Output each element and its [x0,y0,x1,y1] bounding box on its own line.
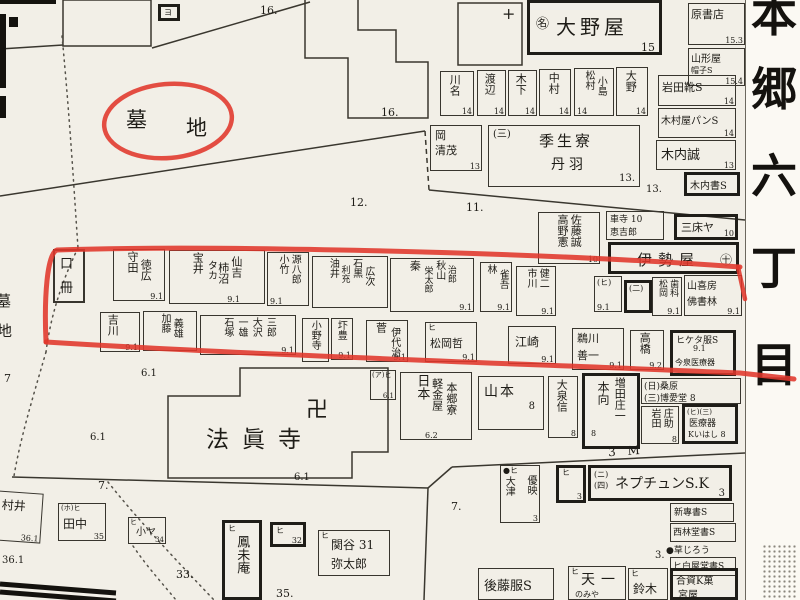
type-mark: ヒ [228,525,236,533]
resident-name: 石黒 [350,258,360,278]
cemetery-label: 墓 [126,104,147,134]
resident-name: 宝井 [192,252,203,274]
company-name: 軽金屋 [431,378,442,411]
bldg-iryoki-ihashi: (ヒ)(三) 医療器 Kいはし 8 [682,404,738,444]
resident-name: 一雄 [236,317,246,337]
parcel-number: 8 [571,430,576,438]
type-mark: ヒ [321,532,329,540]
bldg-goto-fuku: 後藤服S [478,568,554,600]
railway-bar [0,584,116,593]
parcel-number: 14 [724,130,734,138]
bldg-kiuchi-shoten: 木内書S [684,172,740,196]
story-mark: (四) [594,482,608,490]
type-mark: ヒ [562,469,570,477]
resident-name: 岡 [435,127,446,143]
shop-name: 歯科 [668,279,677,297]
parcel-number: 32 [292,537,302,545]
bldg-oonoya: ㊔ 大野屋 15 [527,0,662,55]
type-mark: ヒ [571,568,579,576]
parcel-number: 8 [591,430,596,438]
type-mark: ヒ [631,570,639,578]
shop-name: 鳳未庵 [235,535,248,574]
boundary-dotted [133,546,176,600]
type-mark: (ホ)ヒ [61,505,80,512]
district-char: 六 [751,153,797,199]
parcel-number: 12. [350,196,368,209]
bldg-oono: 大野 14 [616,67,648,116]
parcel-number: 8 [529,401,535,412]
shop-name: 山形屋 [691,50,721,65]
bldg-hi32: ヒ 32 [270,522,306,547]
parcel-number: 9.1 [227,296,240,304]
parcel-number: 35 [94,533,104,541]
bldg-goshi-kashi: 合資K菓 宮屋 [670,568,738,600]
bldg-sekiya-yatarō: ヒ 関谷 31 弥太郎 [318,530,390,576]
shop-name: 大津 [503,476,513,496]
parcel-number: 36.1 [2,555,24,566]
resident-name: 江崎 [515,333,539,350]
bldg-takarai-kakinuma: 宝井 タカ 柿沼 仙吉 9.1 [169,250,265,304]
cemetery-edge-label: 地 [0,320,12,341]
parcel-number: 9.1 [125,344,138,352]
parcel-number: 9.1 [541,308,554,316]
company-name: 合資K菓 [676,572,713,587]
parcel-number: 14 [577,108,587,116]
building-name: 本郷寮 [446,382,457,415]
bldg-akutsu: 圷豊 9.1 [331,318,353,360]
resident-name: 弥太郎 [331,555,367,572]
resident-name: 本向 [597,381,609,405]
parcel-number: 14 [462,108,472,116]
shop-name: 小ヤ [136,523,156,538]
resident-name: 三郎 [264,317,274,337]
bldg-takano-sato: 高野憲 佐藤誠 10 [538,212,600,264]
resident-name: 木下 [515,73,526,95]
circled-mark: ㊉ [720,251,732,268]
bldg-koya: ヒ 小ヤ 34 [128,517,166,544]
shop-name: 天一 [581,569,621,589]
parcel-number: 9.1 [150,293,163,301]
parcel-number: 6.1 [294,472,310,483]
resident-name: 大野 [625,70,636,92]
type-mark: ヒ [276,527,284,535]
resident-name: 小野寺 [309,320,319,350]
bldg-oka-kiyoshige: 岡 清茂 13 [430,125,482,171]
street-line [424,488,428,600]
district-char: 目 [751,342,797,388]
resident-name: 岩田 [649,408,659,428]
resident-name: 山本 [484,381,516,401]
bldg-otsu-yuei: ●ヒ 大津 優映 3 [500,465,540,523]
bldg-kato-yoshio: 加藤 義雄 [143,311,197,351]
bldg-kuwabara-hakuaido: (日)桑原 (三)博愛堂 8 [641,378,741,404]
railway-bar [0,592,116,600]
district-char: 郷 [751,66,797,112]
bldg-seirindo-shoten: 西林堂書S [670,523,736,542]
bldg-matsumura-kojima: 松村 小島 14 [574,68,614,116]
district-char: 丁 [751,245,797,291]
marker-label: ヨ [164,9,172,17]
resident-name: 仙吉 [231,256,242,278]
shop-name: 松岡 [657,279,666,297]
bldg-ezaki: 江崎 9.1 [508,326,556,364]
street-line [0,45,63,49]
temple-name: 法眞寺 [206,420,314,454]
parcel-number: 36.1 [20,534,38,543]
parcel-number: 10 [588,256,598,264]
road-width-label: 3 M [608,443,645,459]
resident-name: 中村 [548,72,559,94]
shop-name: 山喜房 [687,277,717,292]
resident-name: タカ [205,260,215,280]
bldg-matsuoka-tetsu: ヒ 松岡哲 9.1 [425,322,477,362]
parcel-number: 9.1 [541,356,554,364]
bldg-hara-shoten: 原書店 15.3 [688,3,745,45]
resident-name: 川名 [449,74,460,96]
resident-name: 栄太郎 [422,266,431,293]
district-char: 本 [751,0,797,38]
resident-name: 鈴木 [633,580,657,597]
parcel-number: 3. [655,550,665,561]
bldg-honko-masuda: 本向 増田庄一 8 [582,373,640,449]
type-mark: ヒ [428,324,436,332]
parcel-number: 9.1 [597,304,610,312]
resident-name: 大泉信 [556,379,567,412]
parcel-number: 9.1 [497,304,510,312]
parcel-number: 6.1 [141,368,157,379]
boundary-dotted [62,36,78,248]
resident-name: 松村 [583,70,593,90]
parcel-number: 16. [260,4,278,17]
resident-name: 村井 [1,496,26,515]
parcel-number: 13. [619,174,635,184]
street-line [428,467,452,488]
parcel-number: 9.1 [270,298,283,306]
shop-name: ネプチュンS.K [615,473,709,493]
bldg-nakamura: 中村 14 [539,69,571,116]
shop-name: 伊勢屋 [637,249,700,270]
bldg-hayashi: 林 雀吾 9.1 [480,262,512,312]
shop-name: 木内書S [690,177,727,192]
resident-name: 清茂 [435,142,457,158]
bldg-sankibo-busshorin: 山喜房 佛書林 9.1 [684,275,742,316]
parcel-number: 9.1 [281,347,294,355]
parcel-number: 7. [98,479,109,492]
street-line [0,131,425,196]
bldg-nihon-keikin-hongo-ryo: 日本 軽金屋 本郷寮 6.2 [400,372,472,440]
bldg-symbol-box: 口 冊 [53,249,85,303]
bldg-iwata-shosuke: 岩田 庄助 8 [641,406,679,444]
building-name: 季生寮 [539,130,593,151]
parcel-number: 3 [577,493,582,501]
resident-name: 田中 [63,515,87,532]
parcel-number: 15 [641,42,655,53]
shop-type: のみや [575,589,599,600]
parcel-number: 6.2 [425,432,438,440]
map-edge-square [9,17,18,27]
parcel-number: 3 [533,515,538,523]
bldg-neptune: (ニ) (四) ネプチュンS.K 3 [588,465,732,501]
resident-name: 油井 [327,258,337,278]
shop-name: 大野屋 [556,11,628,40]
resident-name: 石塚 [222,317,232,337]
shop-name: 新專書S [674,505,707,518]
resident-name: 治郎 [446,265,455,283]
parcel-number: 10 [724,230,734,238]
street-line [12,477,428,488]
bldg-hi3: ヒ 3 [556,465,586,503]
resident-name: 関谷 31 [331,536,374,553]
parcel-number: 9.1 [727,308,740,316]
resident-name: 菅 [375,322,386,333]
shop-name: 原書店 [691,6,724,22]
building-outline [305,0,428,118]
bldg-kotake-genpachiro: 小竹 源八郎 9.1 [267,252,309,306]
parcel-number: 35. [276,587,294,600]
parcel-number: 9.1 [459,304,472,312]
bldg-watanabe: 渡辺 14 [477,70,506,116]
resident-name: 守田 [127,251,138,273]
resident-name: 小竹 [277,254,287,274]
cemetery-edge-label: 墓 [0,290,11,311]
resident-name: 渡辺 [484,73,495,95]
company-mark: ㊔ [536,13,549,32]
resident-name: 高橋 [639,332,650,354]
bldg-iseya: 伊勢屋 ㊉ [608,242,739,274]
resident-name: 加藤 [159,313,169,333]
parcel-number: 9.1 [693,344,706,353]
resident-name: 庄助 [661,408,671,428]
bldg-kisei-ryo: (三) 季生寮 丹羽 13. [488,125,640,187]
resident-name: 義雄 [171,318,181,338]
symbol: 口 [60,253,73,272]
resident-name: 増田庄一 [614,377,625,421]
type-mark: (ヒ) [597,279,611,287]
parcel-number: 34 [155,537,164,544]
parcel-number: 14 [525,108,535,116]
bldg-kawana: 川名 14 [440,71,474,116]
parcel-number: 13 [470,163,480,171]
parcel-number: 6.1 [90,432,106,443]
bldg-murai: 村井 36.1 [0,490,44,543]
parcel-number: 14 [494,108,504,116]
resident-name: 善一 [577,347,599,363]
shop-name: 今泉医療器 [675,357,715,368]
bldg-santokoya: 三床ヤ 10 [674,214,738,240]
bldg-ishizuka-osawa: 石塚 一雄 大沢 三郎 9.1 [200,315,296,355]
parcel-number: 14 [559,108,569,116]
resident-name: 秋山 [434,260,444,280]
story-mark: (三) [493,130,511,140]
bldg-kuruma: 車寺 10 恵吉郎 [606,211,664,240]
resident-name: 佐藤誠 [570,214,581,247]
bldg-hata-akiyama: 秦 栄太郎 秋山 治郎 9.1 [390,258,474,312]
parcel-number: 11. [466,201,484,214]
bldg-hooan: ヒ 鳳未庵 [222,520,262,600]
shop-name: 医療器 [689,416,716,429]
stipple-texture [762,544,796,600]
parcel-number: 7. [451,500,462,513]
bldg-suzuki: ヒ 鈴木 [628,568,668,600]
bldg-kinoshita: 木下 14 [508,70,537,116]
parcel-number: 7 [4,372,11,385]
street-line-dashed [425,131,429,190]
parcel-number: 6.1 [383,393,394,400]
resident-name: 広次 [363,266,373,286]
parcel-number: 14 [724,98,734,106]
bldg-yoshikawa: 吉川 9.1 [100,312,140,352]
symbol: 冊 [60,277,73,296]
resident-name: 大沢 [250,317,260,337]
shop-name: 後藤服S [484,575,532,594]
bldg-yamamoto: 山本 8 [478,376,544,430]
parcel-number: 9.1 [338,352,351,360]
parcel-number: 9.1 [462,354,475,362]
bldg-oizumi-shin: 大泉信 8 [548,376,578,438]
bldg-yui-ishiguro: 油井 利充 石黒 広次 [312,256,388,308]
bldg-onodera: 小野寺 [302,318,329,362]
resident-name: 車寺 10 [610,212,642,225]
resident-name: 木内誠 [661,144,700,163]
resident-name: 林 [485,264,495,274]
bldg-iwata-kutsu: 岩田靴S 14 [658,75,736,106]
building-outline [63,0,151,46]
bldg-kiuchi-makoto: 木内誠 13 [656,140,736,170]
parcel-number: 15.3 [725,37,743,45]
bldg-suga-iyoji: 菅 伊代治 9.1 [366,320,408,362]
bldg-morita-tokuhiro: 守田 徳広 9.1 [113,249,165,301]
residential-map: ヨ 16. 16. + ㊔ 大野屋 15 原書店 15.3 山形屋 帽子S 15… [0,0,800,600]
bldg-ukawa-zenichi: 鵜川 善一 9.1 [572,328,624,370]
boundary-dotted [14,352,46,476]
shop-name: 岩田靴S [662,79,703,95]
shop-name: 三床ヤ [681,219,714,235]
resident-name: 秦 [409,260,420,271]
resident-name: 松岡哲 [430,335,463,351]
type-mark: ●ヒ [503,467,518,475]
bldg-ichikawa-kenji: 市川 健二 9.1 [516,266,556,316]
parcel-number: 13 [724,162,734,170]
red-ellipse-cemetery [101,79,235,164]
bldg-matsuoka-shika: 松岡 歯科 9.1 [652,277,682,316]
district-name-strip: 本 郷 六 丁 目 [745,0,800,600]
story-mark: (二) [629,285,643,293]
resident-name: 市川 [525,268,535,288]
resident-name: 健二 [537,268,547,288]
shop-name: ●草じろう [666,543,710,556]
bldg-kimuraya-pan: 木村屋パンS 14 [658,108,736,138]
resident-name: 小島 [595,76,605,96]
parcel-number: 9.1 [667,308,680,316]
cross-mark: + [502,4,515,23]
parcel-number: 13. [646,184,662,195]
company-name: 日本 [415,374,428,400]
parcel-number: 9.1 [393,354,406,362]
resident-name: 吉川 [107,314,118,336]
resident-name: 恵吉郎 [610,225,637,238]
bldg-tanaka: (ホ)ヒ 田中 35 [58,503,106,541]
shop-name: 西林堂書S [673,525,715,538]
cemetery-label: 地 [186,112,207,142]
parcel-number: 9.2 [649,362,662,370]
bldg-a-mark: (ア)ヒ 6.1 [370,370,396,400]
bldg-tenichi: ヒ 天一 のみや [568,566,626,600]
bldg-takahashi: 高橋 9.2 [630,330,664,370]
story-mark: (ニ) [594,471,608,479]
shop-name: Kいはし 8 [688,429,726,440]
resident-name: 源八郎 [289,254,299,284]
shop-name: 優映 [525,475,535,495]
parcel-number: 16. [381,106,399,119]
parcel-number: 9.1 [609,362,622,370]
bldg-shinsen-shoten: 新專書S [670,503,734,522]
parcel-number: 14 [636,108,646,116]
resident-name: 丹羽 [551,154,587,174]
bldg-hi-mark: (ヒ) 9.1 [594,276,622,312]
parcel-number: 8 [672,436,677,444]
bldg-hiketa-imaizumi: ヒケタ服S 9.1 今泉医療器 [670,330,736,376]
resident-name: 柿沼 [217,262,228,284]
small-marker-box: ヨ [158,4,180,21]
type-mark: (ア)ヒ [372,372,391,379]
resident-name: 徳広 [140,259,151,281]
bldg-ni-mark: (二) [624,280,652,313]
resident-name: 鵜川 [577,330,599,346]
shop-name: 木村屋パンS [661,112,718,127]
company-name: 宮屋 [678,586,698,600]
resident-name: 利充 [339,265,348,283]
resident-name: 圷豊 [335,320,345,340]
parcel-number: 33. [176,568,194,581]
shop-name: 佛書林 [687,293,717,308]
shop-name: (三)博愛堂 8 [644,391,696,404]
parcel-number: 3 [719,489,725,499]
resident-name: 高野憲 [557,214,568,247]
resident-name: 雀吾 [497,269,507,289]
